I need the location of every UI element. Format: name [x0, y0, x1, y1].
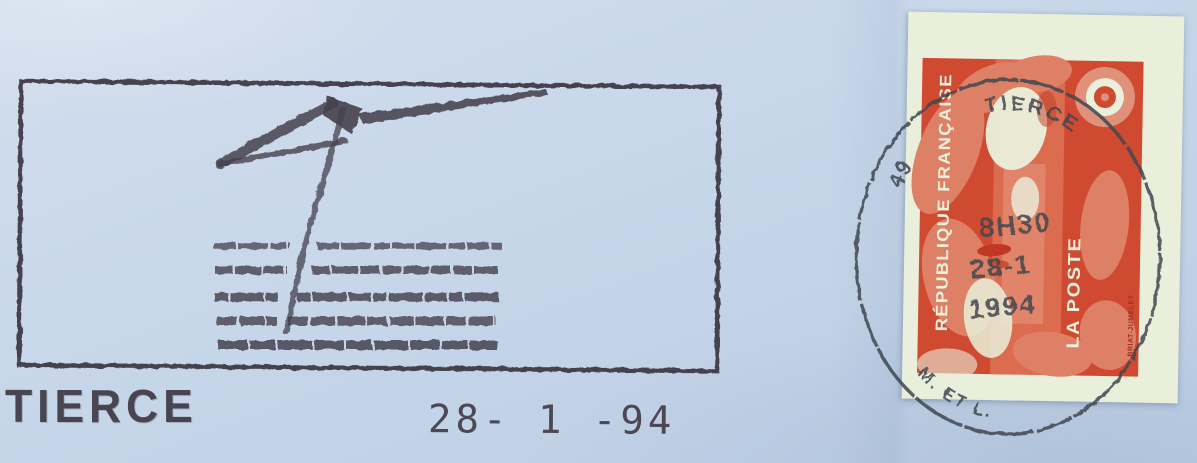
water-lines: [214, 246, 502, 345]
photo-highlight: [0, 0, 420, 120]
stamp-artwork-svg: RÉPUBLIQUE FRANÇAISE LA POSTE BRIAT-JUME…: [902, 12, 1185, 404]
stamp-engraver-text: BRIAT-JUMELET: [1127, 294, 1135, 356]
slogan-cancel: [19, 81, 719, 371]
slogan-frame: [19, 81, 719, 371]
town-name-text: TIERCE: [5, 379, 198, 433]
postage-stamp: RÉPUBLIQUE FRANÇAISE LA POSTE BRIAT-JUME…: [902, 12, 1185, 404]
machine-date-text: 28- 1 -94: [428, 397, 676, 444]
flag-over-water-lines-icon: [220, 89, 548, 332]
stamp-laposte-text: LA POSTE: [1063, 236, 1085, 348]
photo-shading: [830, 0, 910, 463]
